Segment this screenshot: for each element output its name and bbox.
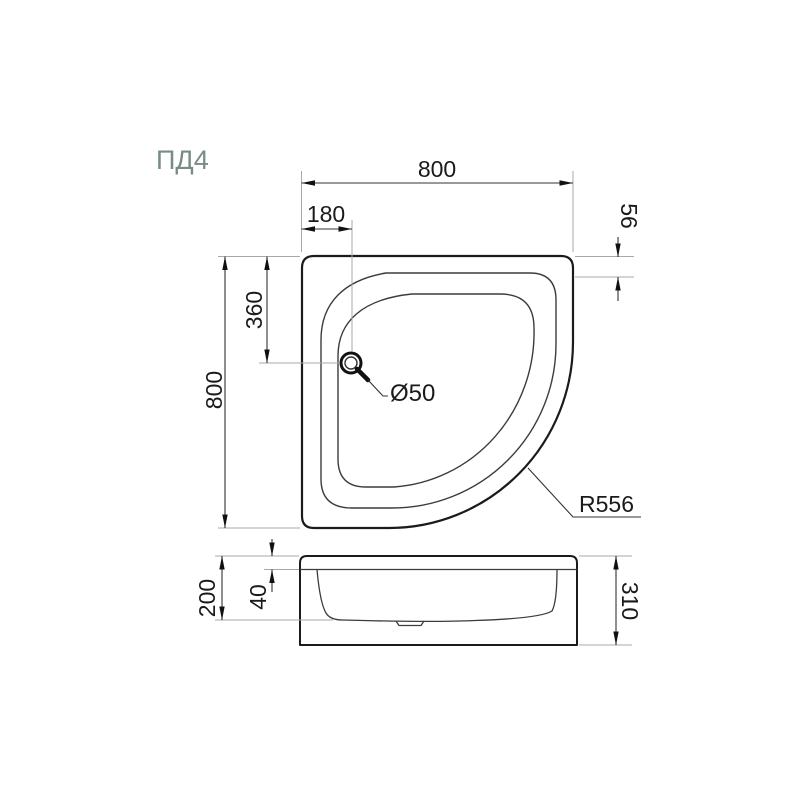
- dimension-value-basin-depth: 200: [194, 579, 220, 617]
- dimension-value-drain-diameter: Ø50: [390, 380, 435, 407]
- arrowhead: [219, 556, 224, 570]
- dimension-value-total-height: 310: [617, 582, 643, 620]
- dimension-value-rim: 56: [616, 203, 642, 229]
- arrowhead: [222, 257, 227, 271]
- arrowhead: [269, 570, 274, 584]
- dimension-value-radius: R556: [579, 491, 634, 517]
- arrowhead: [264, 350, 269, 364]
- arrowhead: [302, 180, 316, 185]
- arrowhead: [615, 244, 620, 258]
- arrowhead: [615, 277, 620, 291]
- arrowhead: [219, 607, 224, 621]
- plan-view: [302, 256, 573, 528]
- shower-tray-drawing: ПД4: [0, 0, 800, 800]
- arrowhead: [264, 257, 269, 271]
- arrowhead: [302, 226, 316, 231]
- tray-outer-edge: [302, 256, 573, 528]
- arrowhead: [222, 515, 227, 529]
- front-view: [300, 556, 577, 645]
- dimension-value-depth: 800: [201, 371, 227, 409]
- arrowhead: [560, 180, 574, 185]
- dimension-value-drain-x: 180: [307, 201, 345, 227]
- dimension-value-rim-height: 40: [245, 584, 271, 610]
- arrowhead: [339, 226, 353, 231]
- arrowhead: [613, 632, 618, 646]
- drain-inner-ring: [345, 357, 357, 369]
- arrowhead: [269, 543, 274, 557]
- dimension-value-drain-y: 360: [241, 291, 267, 329]
- model-label: ПД4: [156, 145, 209, 175]
- dimension-value-width: 800: [418, 156, 456, 182]
- technical-drawing-page: ПД4: [0, 0, 800, 800]
- arrowhead: [613, 556, 618, 570]
